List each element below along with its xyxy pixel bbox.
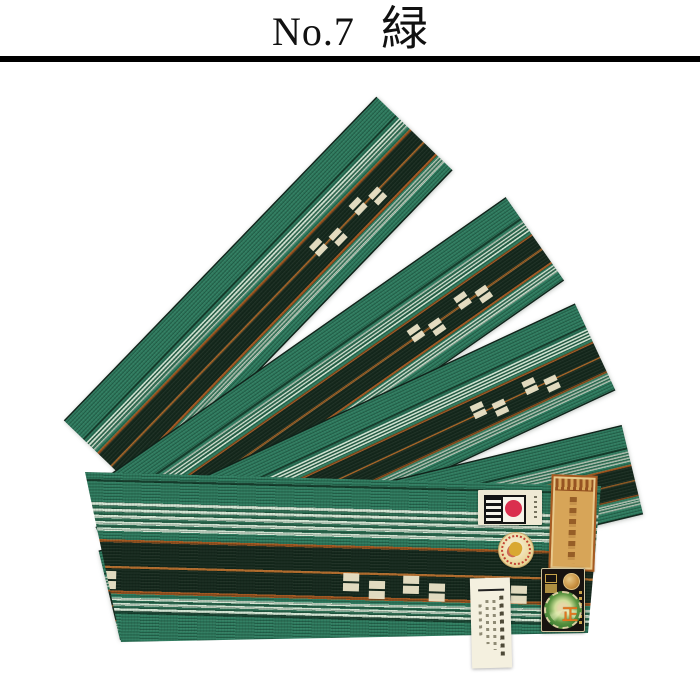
kasuri-motif [343,571,388,602]
round-certification-sticker [498,532,534,568]
kasuri-motif [308,220,350,263]
kenjo-mark-box [484,495,526,524]
kasuri-motif [453,277,496,317]
page: No.7 緑 [0,0,700,700]
gold-stamp-marks [545,574,557,583]
tag-text-column [485,600,489,644]
seal-character: 正 [562,601,578,625]
green-seal-sticker: 正 [544,591,582,629]
header: No.7 緑 [0,0,700,56]
kasuri-motif [521,366,564,403]
gold-woven-label [548,474,597,572]
kasuri-motif [469,390,512,427]
gold-seal-icon [563,573,580,590]
product-photo: 正 [0,62,700,700]
page-title: No.7 緑 [272,7,428,54]
title-number: No.7 [272,12,355,52]
red-sun-icon [503,497,524,522]
kasuri-motif [406,310,449,350]
tag-text-column [479,604,483,638]
kenjo-bars-icon [486,497,503,522]
hakata-mark-label [478,490,542,525]
title-color-kanji: 緑 [381,7,428,54]
label-fine-print [534,496,537,518]
black-certification-label: 正 [541,568,585,632]
tag-string-line [478,589,504,592]
kasuri-motif [348,179,390,222]
tag-text-column [499,596,505,658]
bird-emblem-icon [507,540,524,558]
calligraphy-text [568,497,577,563]
kasuri-motif [403,574,448,605]
tag-text-column [492,600,496,650]
paper-price-tag [470,577,512,668]
